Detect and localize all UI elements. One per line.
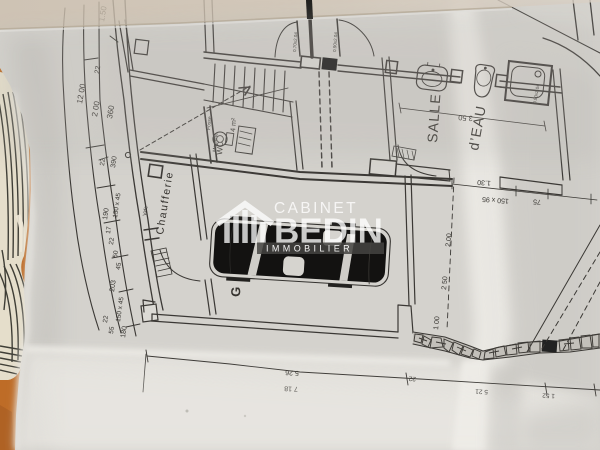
svg-text:75: 75 [533, 197, 541, 205]
svg-text:1.30: 1.30 [477, 178, 491, 186]
svg-text:55: 55 [108, 326, 116, 335]
svg-text:22: 22 [102, 315, 110, 324]
svg-text:17: 17 [105, 226, 113, 235]
svg-text:2.00: 2.00 [445, 233, 453, 247]
svg-text:IMMOBILIER: IMMOBILIER [266, 244, 353, 254]
svg-text:22: 22 [408, 375, 416, 382]
svg-text:50: 50 [112, 250, 120, 259]
svg-text:1 00: 1 00 [433, 316, 441, 330]
svg-text:45: 45 [115, 262, 123, 271]
svg-text:2 50: 2 50 [441, 276, 449, 290]
svg-text:22: 22 [108, 237, 116, 246]
svg-text:G: G [228, 286, 243, 297]
svg-text:5 26: 5 26 [285, 368, 299, 376]
